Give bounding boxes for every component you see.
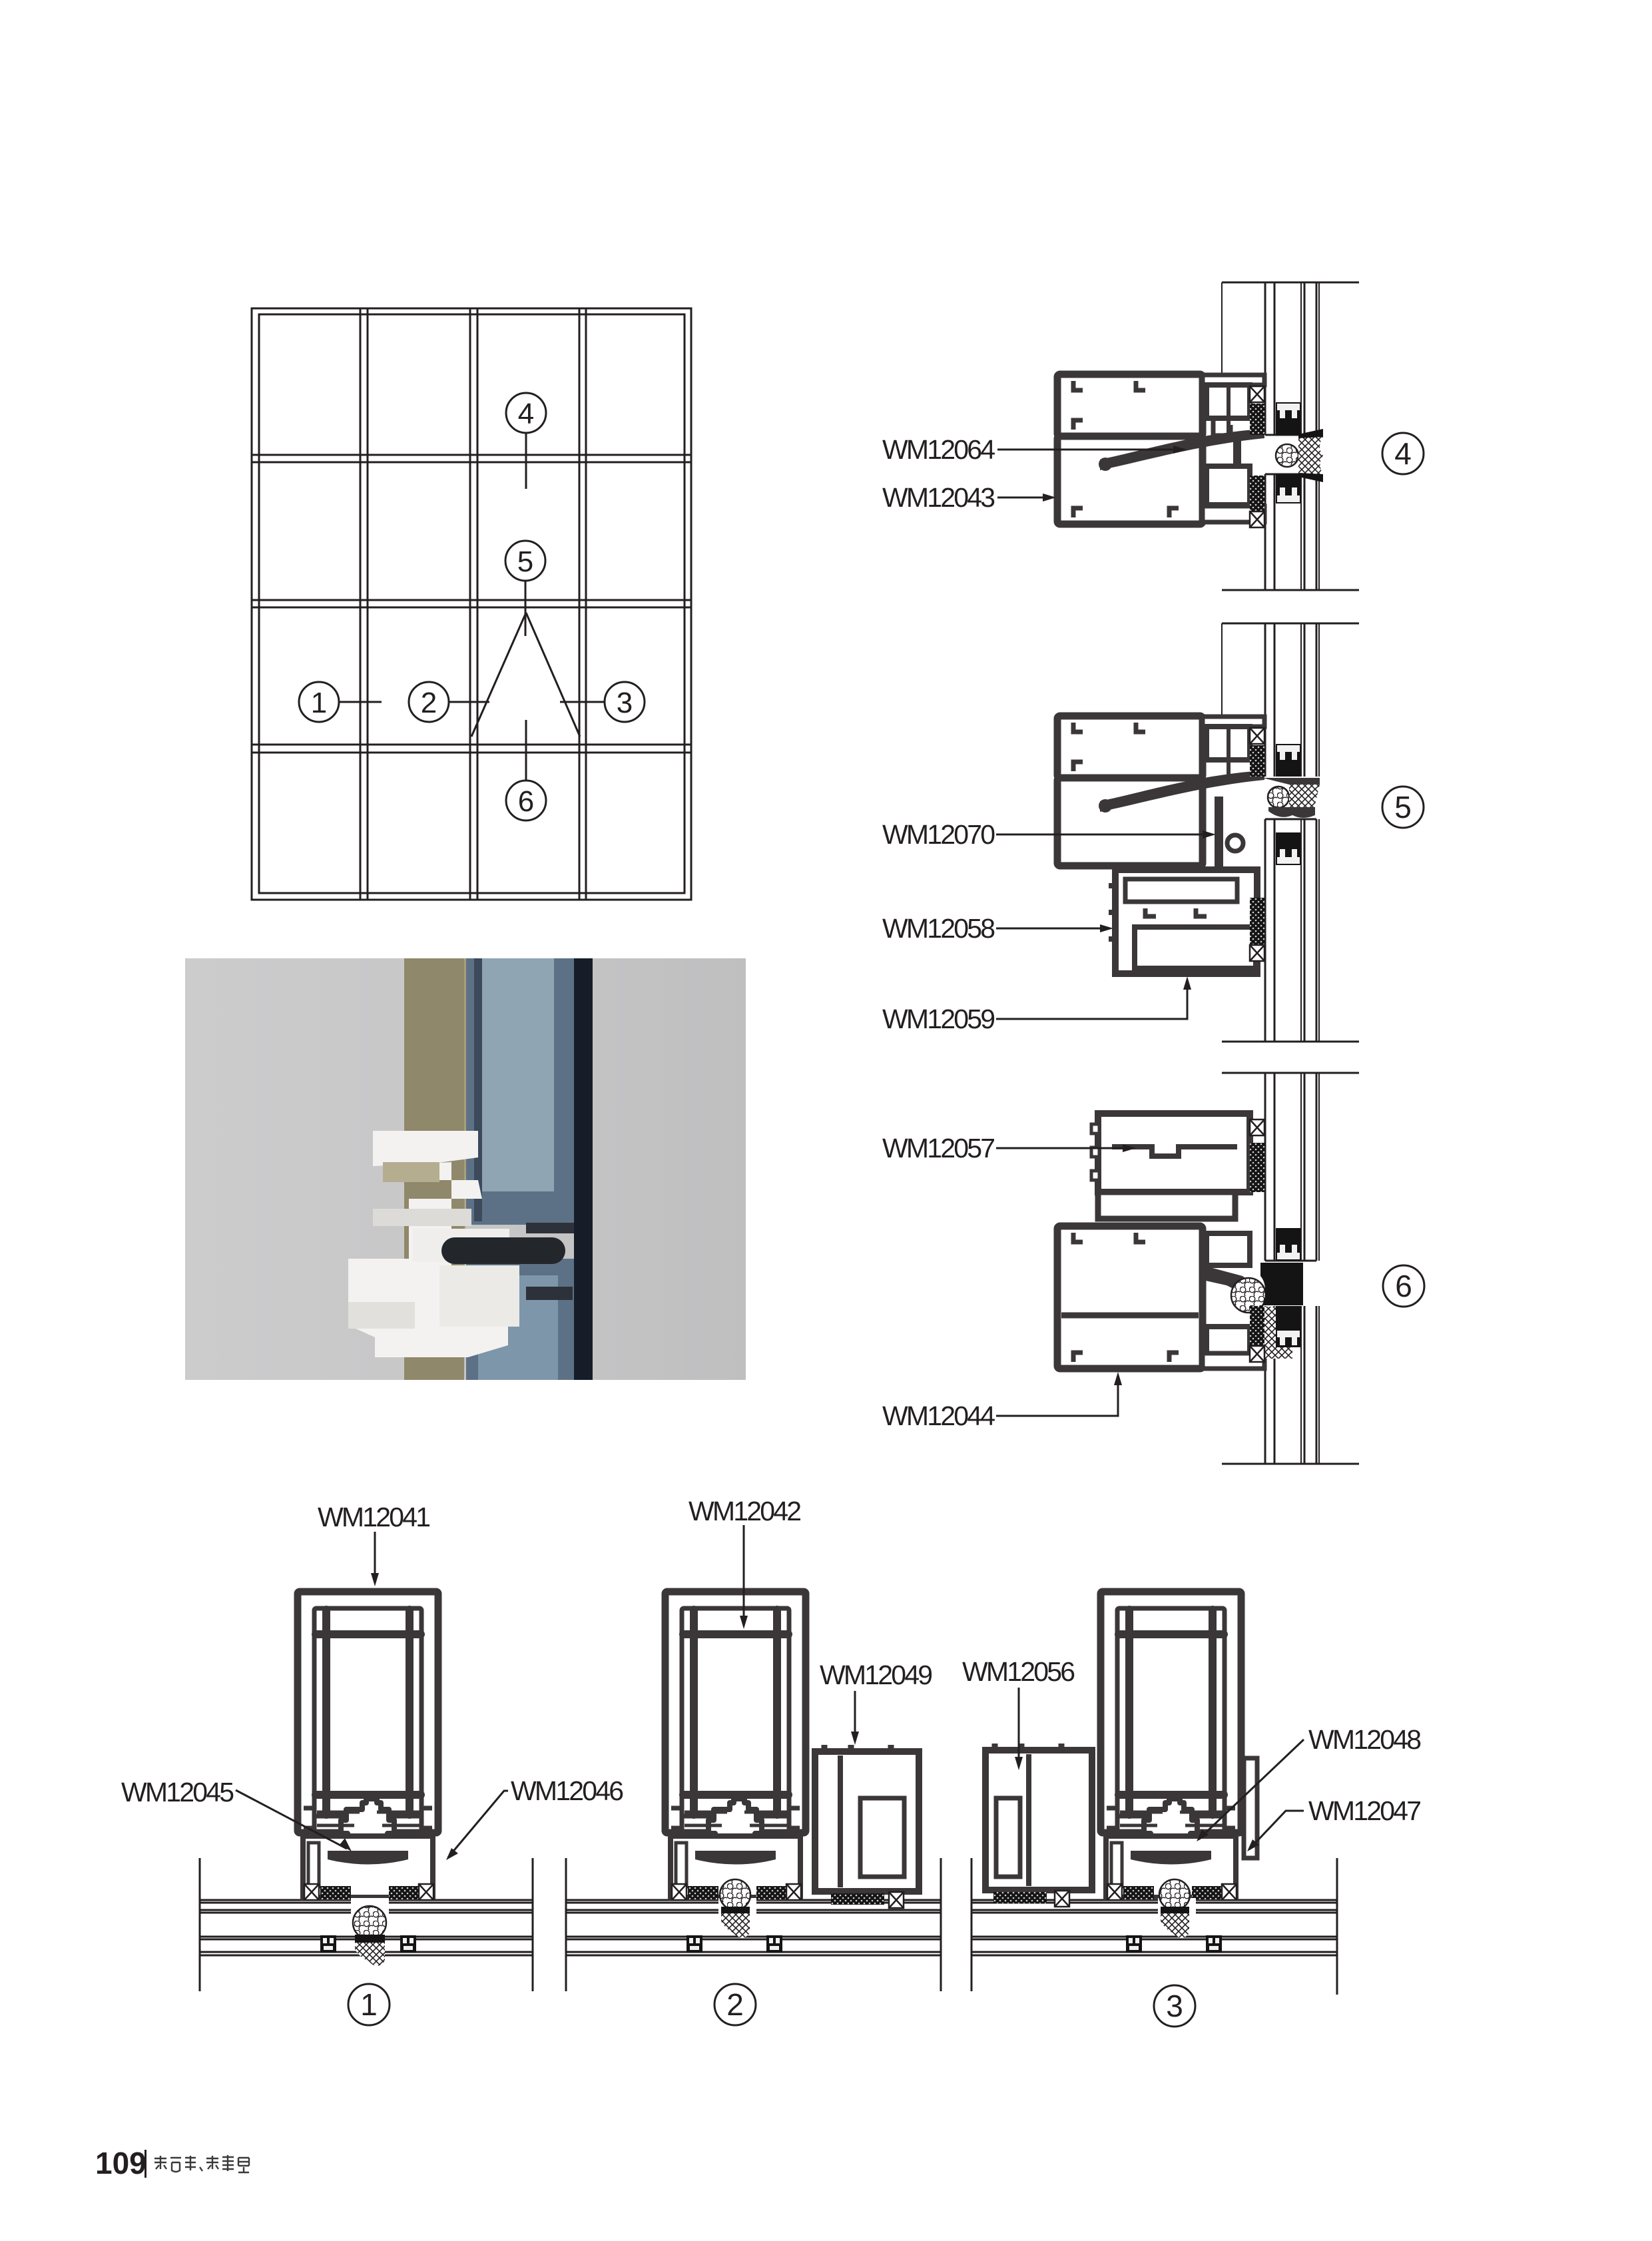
svg-text:WM12070: WM12070 bbox=[882, 819, 995, 850]
svg-text:WM12046: WM12046 bbox=[511, 1775, 624, 1806]
svg-text:5: 5 bbox=[1394, 790, 1412, 824]
svg-text:WM12049: WM12049 bbox=[820, 1660, 933, 1690]
svg-text:6: 6 bbox=[518, 785, 534, 818]
svg-text:WM12058: WM12058 bbox=[882, 913, 995, 944]
svg-text:WM12044: WM12044 bbox=[882, 1401, 995, 1431]
svg-text:1: 1 bbox=[311, 687, 327, 719]
svg-text:6: 6 bbox=[1395, 1269, 1412, 1303]
svg-text:3: 3 bbox=[617, 687, 633, 719]
svg-text:WM12041: WM12041 bbox=[318, 1502, 431, 1532]
svg-text:WM12042: WM12042 bbox=[688, 1496, 802, 1526]
svg-text:WM12045: WM12045 bbox=[121, 1777, 234, 1807]
svg-text:WM12048: WM12048 bbox=[1308, 1724, 1422, 1755]
svg-text:109: 109 bbox=[95, 2146, 146, 2180]
svg-text:2: 2 bbox=[421, 687, 437, 719]
svg-text:4: 4 bbox=[1394, 436, 1412, 471]
svg-text:4: 4 bbox=[518, 398, 534, 430]
svg-text:WM12056: WM12056 bbox=[962, 1656, 1075, 1687]
svg-text:WM12043: WM12043 bbox=[882, 482, 995, 513]
svg-text:WM12057: WM12057 bbox=[882, 1133, 995, 1163]
svg-text:WM12059: WM12059 bbox=[882, 1004, 995, 1034]
svg-text:2: 2 bbox=[726, 1987, 744, 2022]
svg-text:5: 5 bbox=[517, 545, 533, 578]
svg-text:1: 1 bbox=[360, 1987, 378, 2022]
svg-text:WM12064: WM12064 bbox=[882, 434, 995, 465]
svg-text:WM12047: WM12047 bbox=[1308, 1795, 1422, 1826]
svg-text:3: 3 bbox=[1166, 1989, 1183, 2023]
